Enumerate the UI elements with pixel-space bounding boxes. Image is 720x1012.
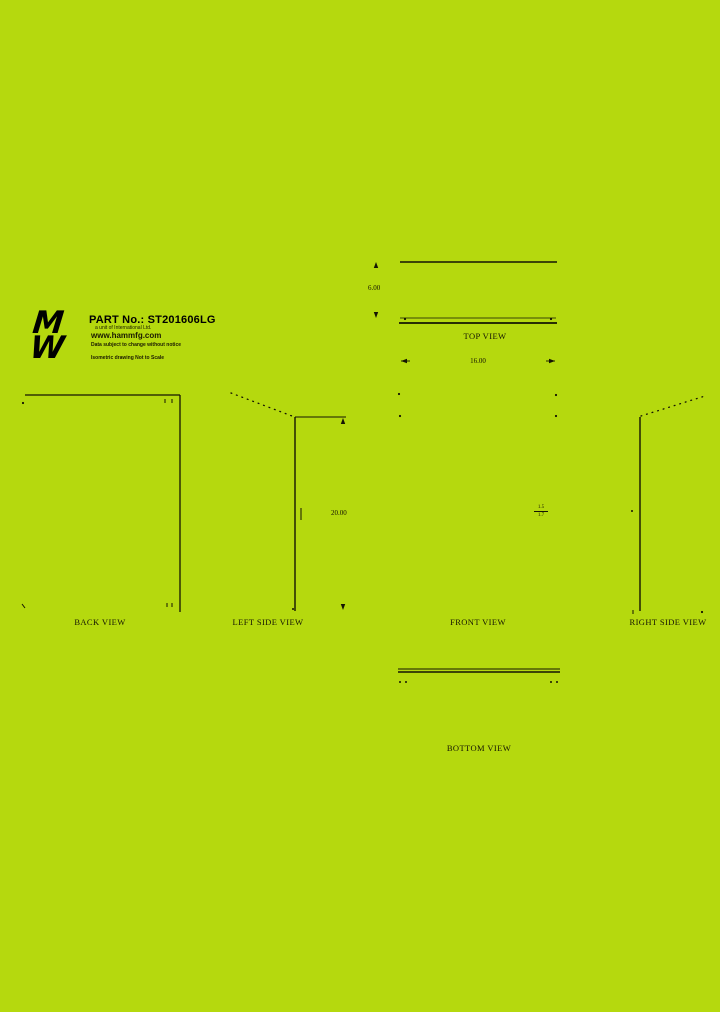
edge-tick (550, 318, 552, 320)
right-side-view-label: RIGHT SIDE VIEW (630, 617, 707, 627)
bottom-view-lines (398, 669, 560, 683)
corner-dot (399, 415, 401, 417)
front-view-lines (398, 393, 557, 417)
drawing-linework (0, 0, 720, 1012)
logo-glyph-bottom: W (29, 336, 86, 361)
left-side-view-lines (231, 393, 346, 611)
thickness-note-bottom: 1.7 (534, 513, 548, 518)
dim-arrow-up (374, 262, 378, 268)
dim-arrow-down (374, 312, 378, 318)
corner-dot (631, 510, 633, 512)
corner-dot (292, 608, 294, 610)
dim-height: 20.00 (331, 509, 347, 517)
corner-dot (22, 402, 24, 404)
corner-dot (550, 681, 552, 683)
drawing-sheet: M W PART No.: ST201606LG a unit of Inter… (0, 0, 720, 1012)
corner-dot (399, 681, 401, 683)
scale-note: Isometric drawing Not to Scale (91, 355, 164, 361)
change-notice: Data subject to change without notice (91, 342, 181, 348)
manufacturer-logo: M W (28, 311, 88, 369)
dim-depth: 6.00 (368, 284, 380, 292)
website-link[interactable]: www.hammfg.com (91, 331, 161, 340)
corner-dot (556, 681, 558, 683)
left-side-view-label: LEFT SIDE VIEW (233, 617, 304, 627)
corner-dot (555, 415, 557, 417)
top-view-lines (374, 262, 557, 363)
top-view-label: TOP VIEW (464, 331, 507, 341)
corner-dot (398, 393, 400, 395)
bottom-view-label: BOTTOM VIEW (447, 743, 511, 753)
dim-width: 16.00 (470, 357, 486, 365)
dim-arrow-up (341, 418, 345, 424)
front-view-label: FRONT VIEW (450, 617, 506, 627)
corner-dot (701, 611, 703, 613)
corner-tick (22, 604, 25, 608)
edge-tick (404, 318, 406, 320)
back-view-label: BACK VIEW (74, 617, 125, 627)
corner-dot (555, 394, 557, 396)
dim-arrow-down (341, 604, 345, 610)
corner-dot (405, 681, 407, 683)
back-view-lines (22, 395, 180, 612)
thickness-note-bar (534, 511, 548, 512)
right-side-view-lines (631, 396, 705, 614)
thickness-note: 1.5 1.7 (534, 505, 548, 518)
thickness-note-top: 1.5 (534, 505, 548, 510)
